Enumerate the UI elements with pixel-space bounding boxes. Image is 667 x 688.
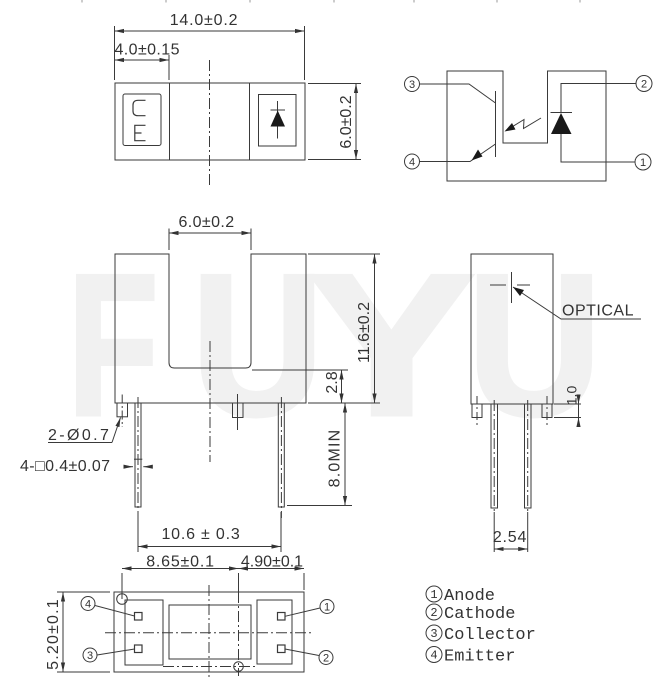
svg-text:1.0: 1.0 [564, 386, 580, 406]
svg-text:Y: Y [309, 234, 474, 457]
svg-text:Anode: Anode [444, 587, 495, 606]
svg-text:10.6 ± 0.3: 10.6 ± 0.3 [161, 526, 240, 543]
svg-text:3: 3 [87, 650, 93, 662]
svg-text:4.90±0.1: 4.90±0.1 [241, 554, 303, 571]
svg-text:4: 4 [85, 599, 91, 611]
svg-text:F: F [68, 234, 158, 457]
svg-text:U: U [468, 234, 601, 457]
svg-text:2: 2 [323, 653, 329, 665]
svg-text:Collector: Collector [444, 626, 536, 645]
svg-text:5.20±0.1: 5.20±0.1 [45, 598, 62, 670]
svg-text:2.8: 2.8 [324, 371, 341, 393]
svg-text:6.0±0.2: 6.0±0.2 [338, 95, 355, 148]
svg-text:2: 2 [430, 606, 437, 620]
svg-text:4-□0.4±0.07: 4-□0.4±0.07 [20, 458, 110, 475]
svg-text:8.0MIN: 8.0MIN [327, 429, 344, 488]
svg-text:OPTICAL: OPTICAL [562, 303, 634, 320]
svg-text:4.0±0.15: 4.0±0.15 [115, 42, 180, 59]
svg-text:4: 4 [430, 649, 437, 663]
svg-text:Emitter: Emitter [444, 648, 515, 667]
svg-text:Cathode: Cathode [444, 605, 515, 624]
svg-text:3: 3 [430, 627, 437, 641]
svg-text:11.6±0.2: 11.6±0.2 [356, 302, 373, 363]
svg-text:1: 1 [640, 157, 646, 169]
svg-text:U: U [192, 234, 323, 457]
svg-text:6.0±0.2: 6.0±0.2 [178, 214, 234, 231]
svg-text:14.0±0.2: 14.0±0.2 [170, 12, 239, 29]
svg-text:8.65±0.1: 8.65±0.1 [146, 554, 215, 571]
svg-text:2: 2 [641, 79, 647, 91]
svg-text:2-Ø0.7: 2-Ø0.7 [48, 427, 111, 444]
svg-text:4: 4 [409, 157, 415, 169]
svg-text:3: 3 [409, 79, 415, 91]
svg-text:1: 1 [430, 588, 437, 602]
svg-text:1: 1 [324, 602, 330, 614]
svg-text:2.54: 2.54 [493, 529, 527, 546]
